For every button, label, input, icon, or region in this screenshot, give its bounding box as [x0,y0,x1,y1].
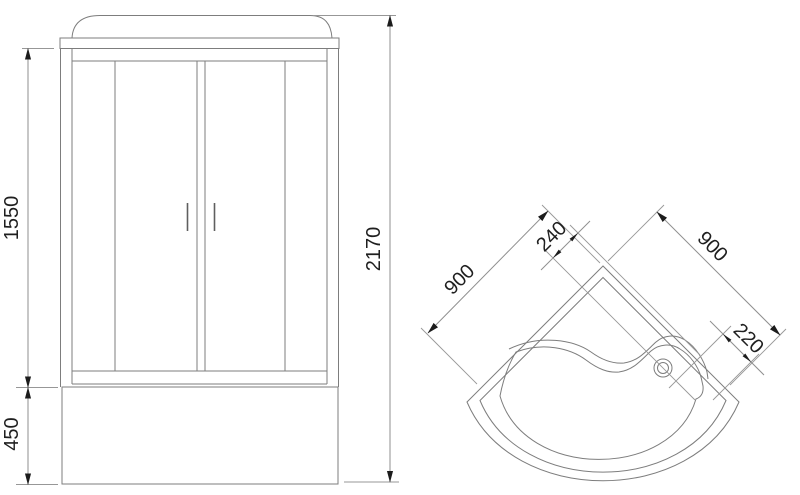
door-panel-dividers [115,61,285,371]
dimension-label-left-side: 900 [440,260,479,299]
tray-basin [500,345,703,459]
dim-line-right-side [657,212,780,335]
seat-edge-line [509,336,708,379]
dimension-label-tray-height: 450 [1,417,23,450]
drawing-canvas: 1550 450 2170 900 [0,0,800,495]
side-frames [61,49,339,388]
top-view-dimensions: 900 240 900 220 [421,205,786,400]
dimension-label-drain-offset: 240 [532,217,571,256]
dimension-label-door-height: 1550 [1,196,23,241]
technical-drawing: 1550 450 2170 900 [0,0,800,495]
top-frame-bar [60,38,339,49]
dim-line-left-side [428,211,548,333]
top-view [467,266,739,481]
front-view [60,16,339,485]
roof-dome [72,16,332,39]
dimension-label-right-side: 900 [693,227,732,266]
dimension-label-total-height: 2170 [363,227,385,272]
tray-inner-rim [480,278,726,473]
tray-skirt [62,387,338,484]
